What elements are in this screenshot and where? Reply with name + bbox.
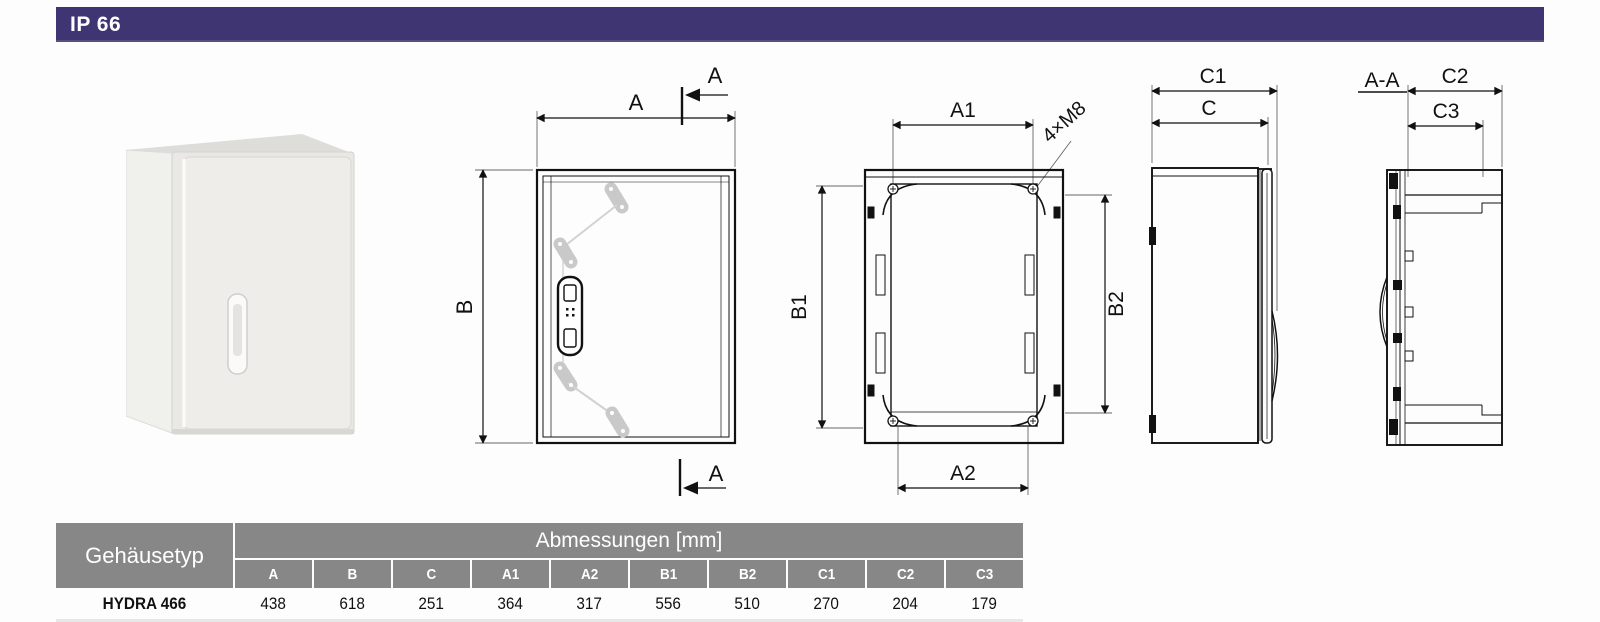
value-C2: 204 [867,590,944,618]
dim-label-A2: A2 [950,462,976,485]
dim-label-A: A [629,90,644,115]
dim-label-C2: C2 [1442,65,1469,88]
side-view-drawing: C1 C [1125,55,1300,495]
front-view-drawing: A B A A [430,55,750,500]
section-view-extension-lines [1408,85,1502,177]
column-header-C3: C3 [946,560,1023,588]
dim-label-C3: C3 [1433,100,1460,123]
rear-enclosure-outline [865,170,1063,443]
thread-note-label: 4×M8 [1038,97,1090,147]
table-row: HYDRA 466 438 618 251 364 317 556 510 27… [56,590,1023,618]
column-header-C2: C2 [867,560,944,588]
value-A1: 364 [472,590,549,618]
photo-top-face [126,134,354,154]
value-B1: 556 [630,590,707,618]
value-A2: 317 [551,590,628,618]
table-group-header: Abmessungen [mm] [235,523,1023,558]
dimensions-table-header: Gehäusetyp Abmessungen [mm] A B C A1 A2 … [56,523,1023,588]
value-C3: 179 [946,590,1023,618]
row-header-label: Gehäusetyp [85,543,204,569]
value-B: 618 [314,590,391,618]
group-header-label: Abmessungen [mm] [536,529,723,553]
value-B2: 510 [709,590,786,618]
section-enclosure-outline [1380,170,1502,445]
value-C1: 270 [788,590,865,618]
photo-handle-inset [233,304,242,356]
enclosure-photo-graphic [126,128,362,444]
dim-label-A1: A1 [950,99,976,122]
column-header-A2: A2 [551,560,628,588]
section-marker-top: A [682,63,728,125]
dim-label-B1: B1 [788,294,811,320]
dim-label-C1: C1 [1200,65,1227,88]
rear-view-extension-lines [816,119,1112,495]
corner-brackets [883,184,1045,426]
dim-label-B: B [452,300,477,315]
value-A: 438 [235,590,312,618]
column-header-A1: A1 [472,560,549,588]
column-header-C1: C1 [788,560,865,588]
column-header-C: C [393,560,470,588]
ip-rating-bar: IP 66 [56,7,1544,42]
ip-rating-label: IP 66 [70,13,121,36]
column-header-B1: B1 [630,560,707,588]
column-header-B2: B2 [709,560,786,588]
photo-door [184,157,351,429]
datasheet-page: IP 66 A B [0,0,1600,622]
rear-view-drawing: A1 4×M8 B1 B2 A2 [780,55,1130,515]
enclosure-type-cell: HYDRA 466 [56,590,233,618]
section-view-title: A-A [1364,69,1399,92]
column-header-A: A [235,560,312,588]
section-view-drawing: A-A C2 C3 [1330,55,1545,495]
side-enclosure-outline [1149,168,1278,443]
product-photo [126,128,362,444]
photo-side-face [126,150,172,433]
section-label-bottom: A [709,461,724,486]
value-C: 251 [393,590,470,618]
mounting-screws [888,184,1038,426]
table-row-header: Gehäusetyp [56,523,233,588]
section-label-top: A [708,63,723,88]
dim-label-C: C [1201,97,1216,120]
front-view-extension-lines [475,111,735,443]
door-handle [558,277,582,355]
section-marker-bottom: A [680,459,726,496]
column-header-B: B [314,560,391,588]
photo-bottom-edge [172,429,354,434]
